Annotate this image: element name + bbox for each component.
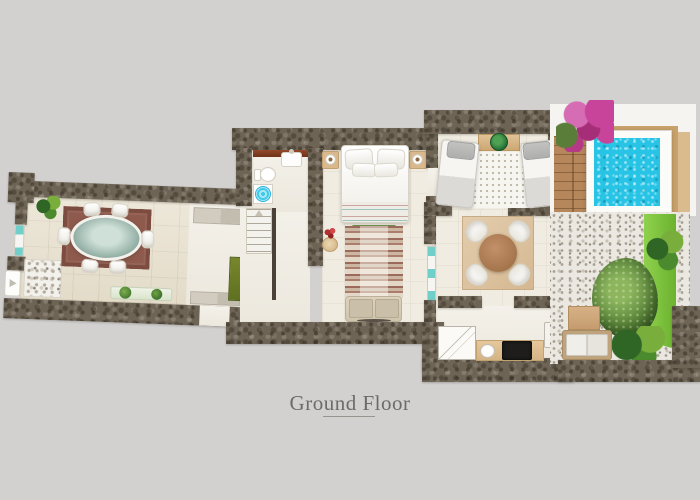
- dining-chair: [141, 230, 154, 248]
- single-bed-pillow: [446, 141, 476, 161]
- wall-top-right-block: [424, 110, 568, 134]
- entrance-arrow-icon: [9, 279, 16, 287]
- console-plant-icon: [490, 133, 508, 151]
- palm-plant-top: [646, 230, 684, 272]
- wall-kitchen-top-left: [438, 296, 482, 308]
- bougainvillea: [556, 100, 614, 152]
- wall-left-mid: [7, 256, 26, 271]
- toilet-bowl: [260, 167, 276, 182]
- bench-cushion: [566, 334, 608, 356]
- sofa-shadow: [357, 319, 391, 322]
- bed-striped-throw: [342, 202, 408, 222]
- table-lamp-icon: [412, 154, 423, 165]
- window-bedroom-living: [427, 246, 436, 302]
- washbasin-tap-icon: [289, 149, 294, 154]
- bed-pillow: [374, 162, 399, 177]
- round-table: [479, 234, 517, 272]
- flower-vase-icon: [322, 226, 338, 240]
- dining-chair: [109, 260, 126, 275]
- washing-machine-drum-icon: [255, 186, 271, 202]
- dining-plant: [35, 195, 62, 220]
- sofa-cushion: [375, 299, 399, 318]
- floorplan-canvas: Ground Floor: [0, 0, 700, 500]
- washbasin: [281, 152, 302, 167]
- sideboard: [193, 207, 244, 225]
- terrace-mat: [568, 306, 600, 330]
- wall-corridor-bedroom: [308, 148, 323, 266]
- wood-deck-right: [678, 132, 690, 214]
- stair-handrail: [272, 208, 276, 300]
- kitchen-sink: [480, 344, 495, 358]
- wall-corner-terrace: [672, 306, 700, 368]
- wall-left-upper: [15, 196, 28, 224]
- wall-top-central: [232, 128, 440, 150]
- table-lamp-icon: [325, 154, 336, 165]
- caption-underline: [323, 416, 375, 417]
- pebble-mat: [23, 259, 62, 298]
- dining-chair: [83, 202, 101, 217]
- dining-chair: [80, 258, 99, 274]
- stairs-arrow-icon: [255, 210, 263, 216]
- window-left-wall: [14, 224, 25, 256]
- left-wing: [3, 170, 257, 331]
- corner-shower: [438, 326, 476, 360]
- sofa-cushion: [349, 299, 373, 318]
- cooktop: [502, 341, 532, 360]
- wall-left-central: [236, 148, 252, 206]
- bed-pillow: [352, 163, 376, 178]
- single-bed-pillow: [522, 141, 552, 161]
- dining-chair: [111, 202, 129, 218]
- floor-caption-text: Ground Floor: [290, 391, 411, 415]
- kilim-rug: [345, 226, 403, 298]
- dining-chair: [57, 227, 71, 246]
- floor-caption: Ground Floor: [270, 391, 430, 416]
- wall-bottom-central: [226, 322, 444, 344]
